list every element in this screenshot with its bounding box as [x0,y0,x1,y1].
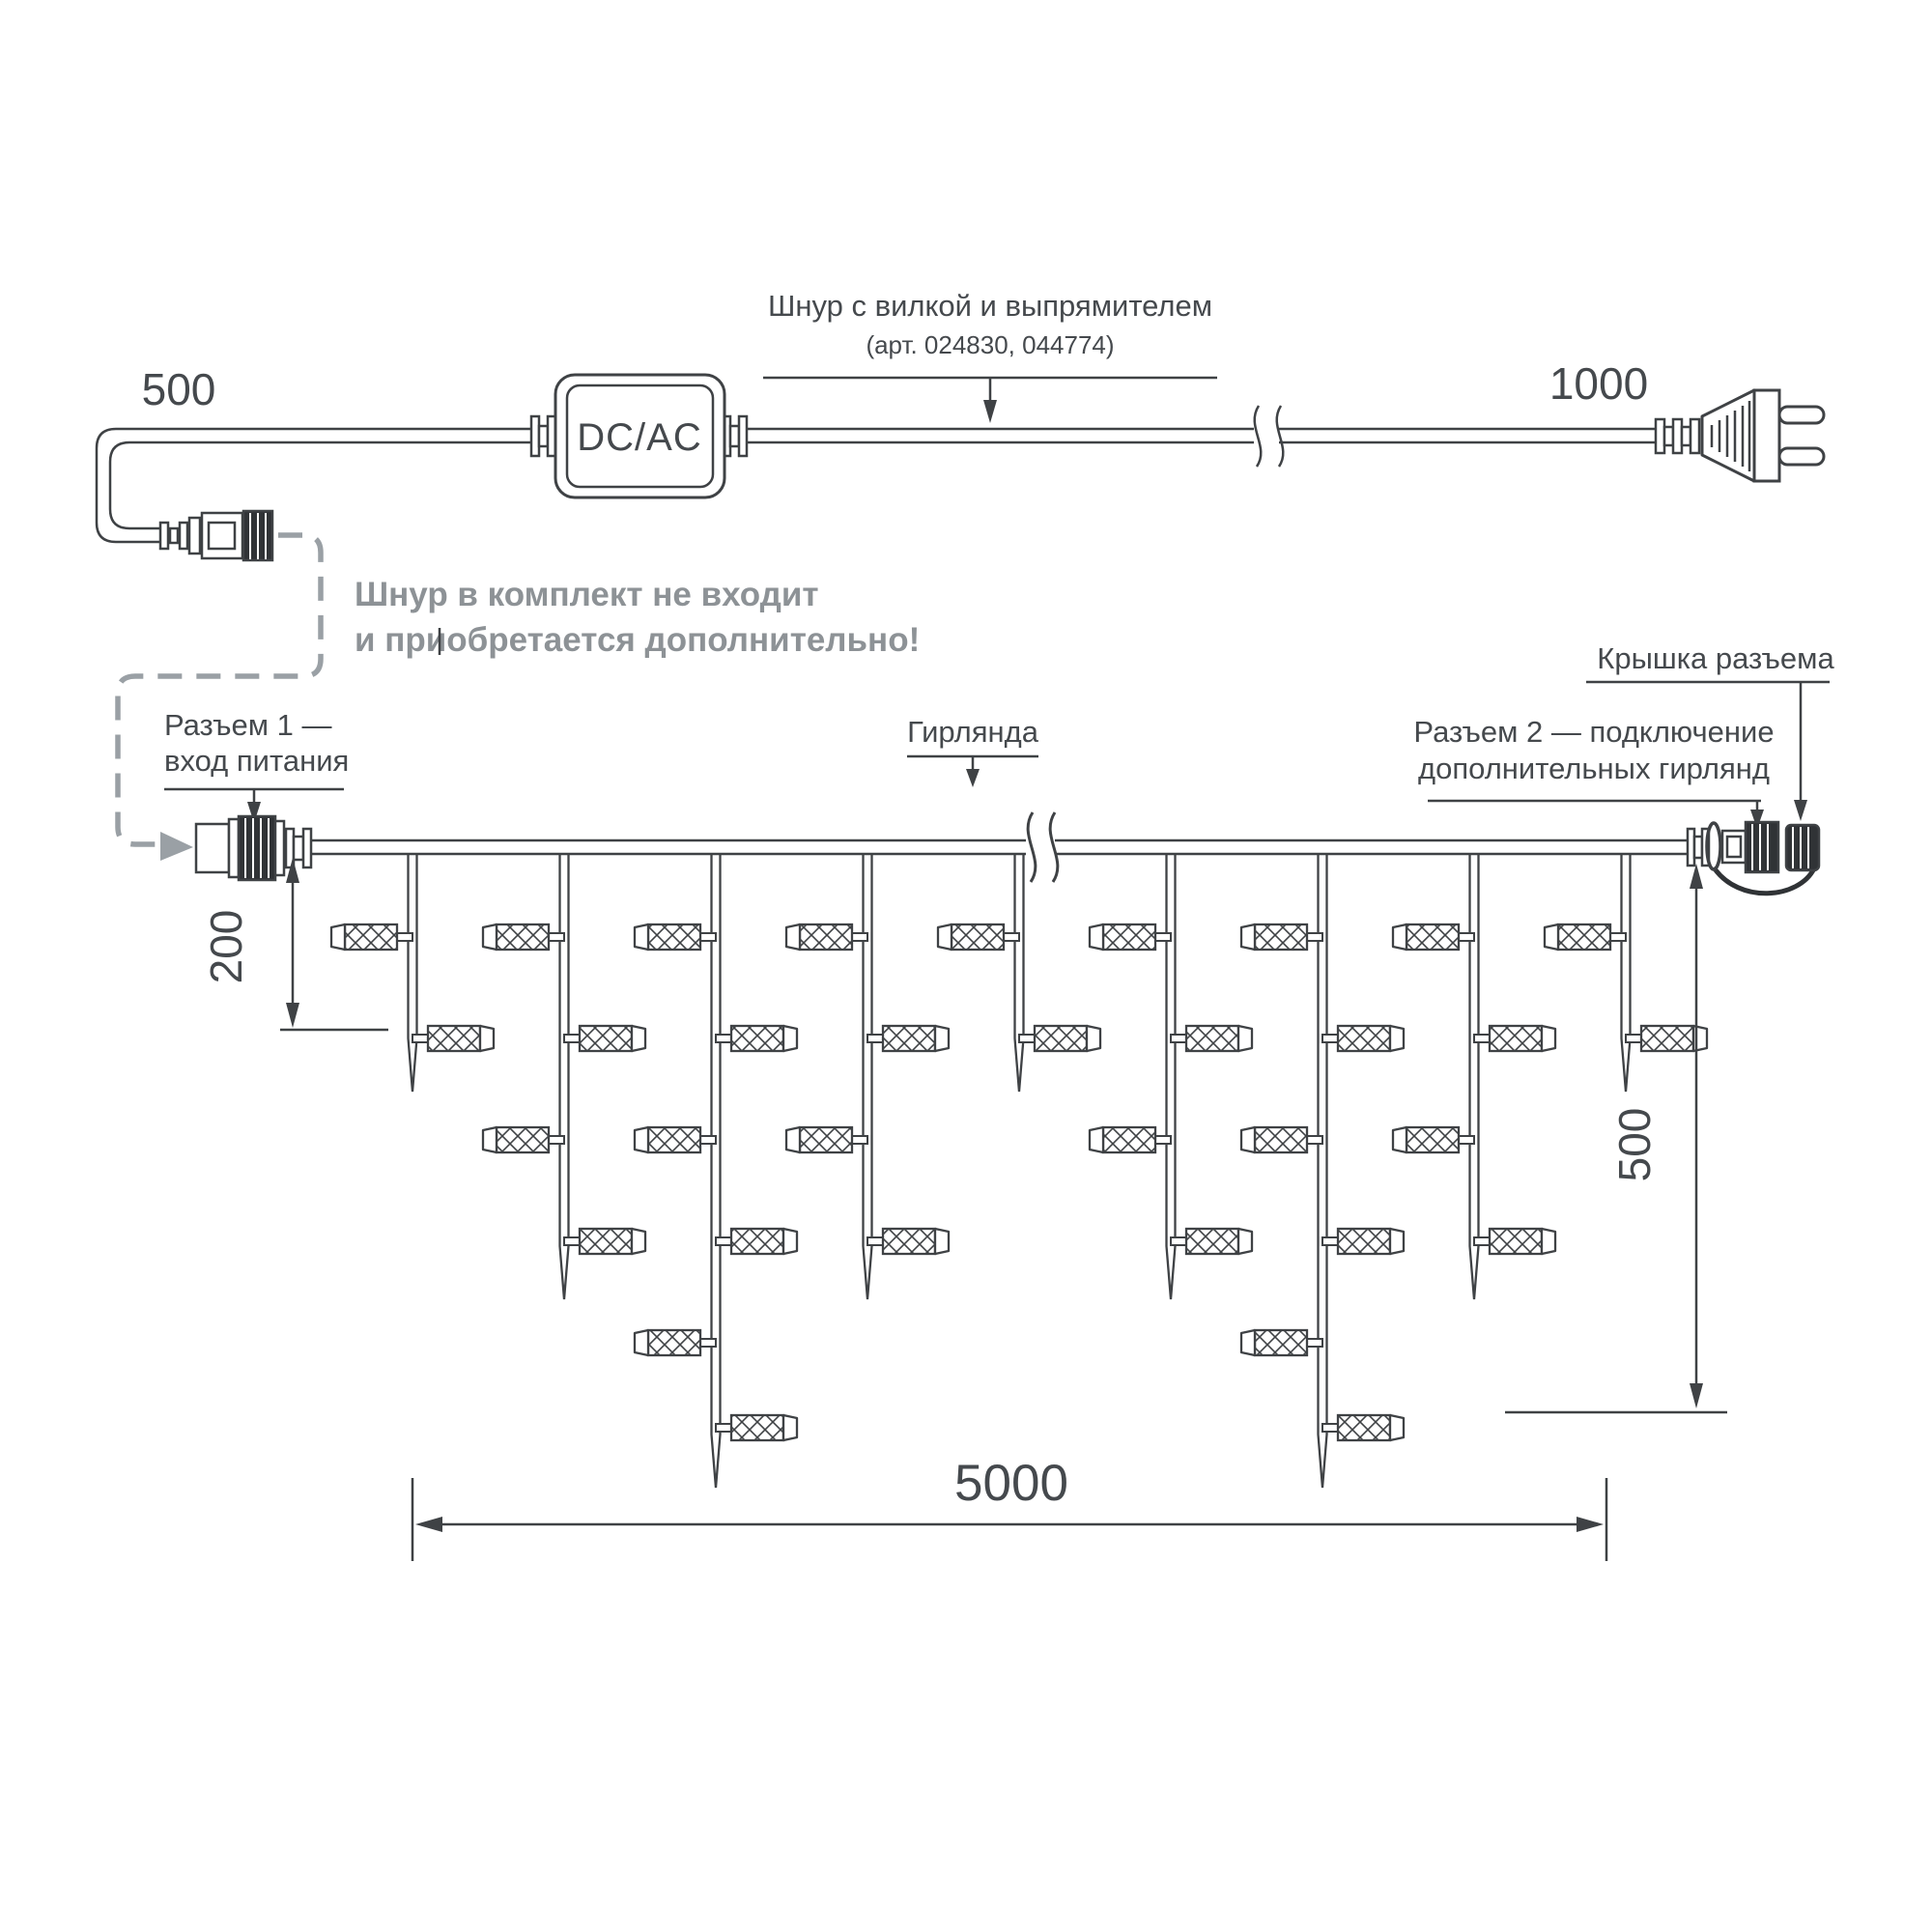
cord-title-arrow-icon [983,400,997,423]
led-bulb-icon [1474,1229,1555,1254]
garland-wire-break-icon [1028,812,1058,882]
garland-drop [1470,854,1479,1299]
led-bulb-icon [1322,1026,1404,1051]
connector2-label: Разъем 2 — подключение дополнительных ги… [1413,715,1774,829]
cord-break-icon [1255,406,1284,467]
led-bulb-icon [635,1127,716,1152]
dim-200-text: 200 [201,910,251,984]
garland-drop [1015,854,1024,1092]
connector1-label-line1: Разъем 1 — [164,708,331,742]
garland-drops [331,854,1707,1488]
garland-wire [311,840,1688,854]
connector2-label-line1: Разъем 2 — подключение [1413,715,1774,749]
led-bulb-icon [331,924,412,950]
led-bulb-icon [412,1026,494,1051]
dim-1000-right: 1000 [1549,358,1648,409]
dcac-converter-box: DC/AC [531,375,747,497]
led-bulb-icon [1393,924,1474,950]
garland-drop [560,854,569,1299]
led-bulb-icon [635,924,716,950]
led-bulb-icon [1171,1229,1252,1254]
cord-title: Шнур с вилкой и выпрямителем [768,289,1212,323]
led-bulb-icon [1241,1127,1322,1152]
connector2-label-line2: дополнительных гирлянд [1418,752,1770,785]
wiring-diagram: Шнур с вилкой и выпрямителем (арт. 02483… [0,0,1932,1932]
led-bulb-icon [716,1415,797,1440]
led-bulb-icon [1241,924,1322,950]
led-bulb-icon [1090,924,1171,950]
dimension-500: 500 [1505,864,1727,1412]
garland-label: Гирлянда [907,715,1039,787]
garland-drop [1167,854,1176,1299]
cord-right-run [747,429,1656,442]
garland-drop [864,854,872,1299]
led-bulb-icon [1322,1229,1404,1254]
led-bulb-icon [1393,1127,1474,1152]
garland-drop [1622,854,1631,1092]
dimension-5000: 5000 [412,1455,1606,1561]
cord-male-connector [160,511,272,560]
led-bulb-icon [1626,1026,1707,1051]
led-bulb-icon [1171,1026,1252,1051]
cord-article-numbers: (арт. 024830, 044774) [866,330,1114,359]
led-bulb-icon [1090,1127,1171,1152]
led-bulb-icon [1545,924,1626,950]
note-line1: Шнур в комплект не входит [355,576,819,613]
garland-drop [712,854,721,1488]
led-bulb-icon [716,1026,797,1051]
led-bulb-icon [635,1330,716,1355]
connector1-label: Разъем 1 — вход питания [164,708,349,823]
dim-5000-text: 5000 [954,1455,1068,1512]
led-bulb-icon [1241,1330,1322,1355]
led-bulb-icon [564,1026,645,1051]
led-bulb-icon [786,924,867,950]
garland-label-text: Гирлянда [907,715,1039,749]
led-bulb-icon [564,1229,645,1254]
power-plug [1656,390,1824,481]
dcac-label: DC/AC [577,416,701,459]
led-bulb-icon [1474,1026,1555,1051]
led-bulb-icon [867,1229,949,1254]
led-bulb-icon [867,1026,949,1051]
led-bulb-icon [1322,1415,1404,1440]
led-bulb-icon [938,924,1019,950]
cap-label-text: Крышка разъема [1597,641,1834,675]
led-bulb-icon [786,1127,867,1152]
led-bulb-icon [483,924,564,950]
garland-connector2 [1688,822,1819,894]
connector1-label-line2: вход питания [164,744,349,778]
connector-cap [1786,825,1819,870]
dashed-path-arrow-icon [160,832,193,861]
dashed-connection-path [118,535,321,844]
garland-drop [409,854,417,1092]
dim-500-text: 500 [1609,1108,1660,1182]
dim-500-left: 500 [142,364,216,414]
garland-drop [1319,854,1327,1488]
led-bulb-icon [1019,1026,1100,1051]
led-bulb-icon [483,1127,564,1152]
led-bulb-icon [716,1229,797,1254]
